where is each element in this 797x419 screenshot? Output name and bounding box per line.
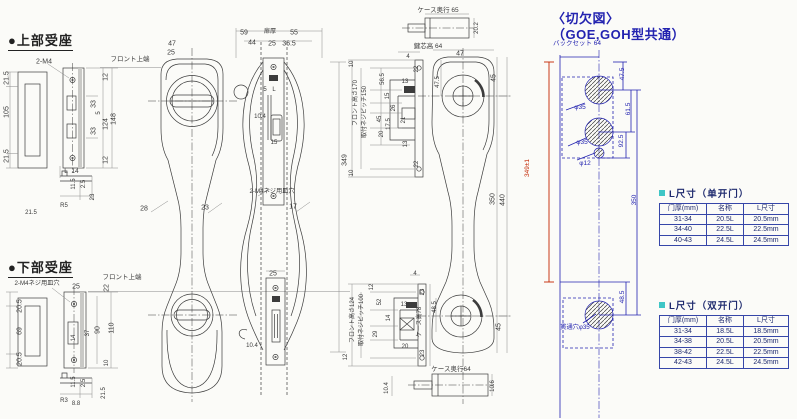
dim-label: 5 [263,87,266,93]
table-row: 31-3420.5L20.5mm [660,214,789,225]
dim-label: 21.5 [4,149,11,163]
dim-label: φ35 [576,140,587,147]
dim-label: 2.5 [81,379,87,387]
dim-label: 47.5 [435,76,441,88]
dim-label: 5 [96,111,102,114]
dim-label: 349±1 [525,159,532,177]
dim-label: 11.5 [71,178,77,189]
dim-label: 23 [201,205,209,212]
dim-label: 28 [140,206,148,213]
dim-label: 110 [109,322,116,333]
table-header-row: 门厚(mm)名称L尺寸 [660,316,789,327]
table-header-cell: 名称 [707,204,744,215]
dim-label: 10.4 [246,343,258,349]
table-cell: 22.5mm [744,347,789,358]
dim-label: 90 [95,326,102,334]
spec-table-double-door: L尺寸（双开门）门厚(mm)名称L尺寸31-3418.5L18.5mm34-38… [659,298,789,369]
table-row: 38-4222.5L22.5mm [660,347,789,358]
dim-label: 15 [271,140,278,146]
dim-label: L [272,87,275,93]
dim-label: 52 [377,299,383,306]
dim-label: 貫通穴φ35 [560,325,589,331]
dim-label: 2-M4 [36,59,52,66]
dim-label: 10.4 [254,114,266,120]
dim-label: ケース奥行 65 [417,8,458,15]
table-cell: 34-40 [660,225,707,236]
table-header-cell: 门厚(mm) [660,316,707,327]
dim-label: 33 [91,127,98,135]
dim-label: 21 [401,117,407,124]
dim-label: 8.8 [72,401,80,407]
table-cell: 20.5mm [744,214,789,225]
table-cell: 42-43 [660,358,707,369]
table-cell: 24.5mm [744,235,789,246]
dim-label: 105 [4,106,11,118]
dim-label: 25 [268,41,276,48]
dim-label: フロント高さ170 [353,80,359,126]
table-cell: 24.5L [707,358,744,369]
dim-label: 124 [103,118,110,130]
dim-label: 12 [343,354,349,361]
table-title: L尺寸（单开门） [669,186,749,200]
dim-label: 23 [420,289,426,296]
dim-label: 鍵芯高 64 [414,44,443,51]
handle-front-view-right [418,48,512,404]
dim-label: フロント上端 [103,275,142,282]
dim-label: 2-M4ネジ用皿穴 [249,189,294,195]
table-header-row: 门厚(mm)名称L尺寸 [660,204,789,215]
table-cell: 18.5L [707,326,744,337]
dim-label: 61.5 [626,103,633,116]
table-header-cell: L尺寸 [744,316,789,327]
dim-label: 47 [456,51,464,58]
dim-label: 12 [369,284,375,291]
dim-label: 21.5 [25,210,37,216]
dim-label: 56.5 [380,73,386,85]
dim-label: 10.6 [490,380,496,392]
dim-label: 29 [373,331,379,338]
dim-label: 25 [72,284,80,291]
dim-label: 10 [104,360,110,367]
lower-seat-title: ●下部受座 [8,257,73,278]
dim-label: 440 [500,194,507,206]
table-cell: 20.5L [707,337,744,348]
table-cell: 20.5L [707,214,744,225]
size-table: 门厚(mm)名称L尺寸31-3418.5L18.5mm34-3820.5L20.… [659,315,789,369]
dim-label: 13 [402,79,409,85]
table-cell: 31-34 [660,326,707,337]
dim-label: フロント上端 [111,57,150,64]
dim-label: φ12 [579,161,590,168]
table-cell: 22.5mm [744,225,789,236]
dim-label: 45 [496,323,503,331]
table-cell: 18.5mm [744,326,789,337]
dim-label: R3 [60,398,68,404]
upper-seat-title: ●上部受座 [8,30,73,51]
dim-label: 12 [103,156,110,164]
dim-label: 349 [342,154,349,166]
dim-label: 44 [248,40,256,47]
table-cell: 38-42 [660,347,707,358]
dim-label: 10 [349,61,355,68]
dim-label: 26 [391,105,397,112]
table-header-cell: 名称 [707,316,744,327]
dim-label: 扉厚 [264,29,276,35]
table-title: L尺寸（双开门） [669,298,749,312]
dim-label: 20 [402,344,409,350]
dim-label: 10 [349,170,355,177]
dim-label: 13 [401,302,408,308]
dim-label: 350 [490,193,497,205]
dim-label: 10.4 [384,382,390,394]
dim-label: フロント高さ124 [350,297,356,343]
table-cell: 24.5mm [744,358,789,369]
dim-label: 12 [103,73,110,81]
dim-label: 17 [289,204,297,211]
table-row: 40-4324.5L24.5mm [660,235,789,246]
dim-label: 33 [91,100,98,108]
table-cell: 31-34 [660,214,707,225]
dim-label: 59 [240,30,248,37]
dim-label: 48.5 [432,301,438,313]
dim-label: 23 [90,194,96,201]
dim-label: 22 [414,161,420,168]
dim-label: 4 [406,54,409,60]
dim-label: 36.5 [282,41,296,48]
dim-label: 21.5 [4,71,11,85]
table-cell: 34-38 [660,337,707,348]
dim-label: 48.5 [620,291,627,304]
dim-label: 47 [168,41,176,48]
table-header-cell: L尺寸 [744,204,789,215]
dim-label: 69 [17,327,24,335]
table-row: 31-3418.5L18.5mm [660,326,789,337]
table-cell: 24.5L [707,235,744,246]
cyan-square-icon [659,190,665,196]
dim-label: 17.5 [386,118,392,130]
technical-drawing-canvas: ●上部受座 ●下部受座 〈切欠図〉 （GOE,GOH型共通） 2-M4フロント上… [0,0,797,419]
dim-label: ケース高78 [417,307,423,337]
table-cell: 40-43 [660,235,707,246]
table-row: 34-3820.5L20.5mm [660,337,789,348]
cyan-square-icon [659,302,665,308]
dim-label: L [64,169,68,176]
table-cell: 22.5L [707,347,744,358]
dim-label: 20.5 [17,299,24,313]
handle-front-view-left [148,48,238,402]
dim-label: 13 [403,141,409,148]
dim-label: 取付ネジピッチ150 [362,86,368,138]
dim-label: φ35 [574,105,585,112]
dim-label: 14 [71,335,77,342]
dim-label: 2.5 [81,180,87,188]
dim-label: 21.5 [101,387,107,399]
table-title-row: L尺寸（单开门） [659,186,789,200]
dim-label: 23 [420,350,426,357]
dim-label: 20 [379,131,385,138]
dim-label: 45 [377,116,383,123]
dim-label: 37 [85,330,91,337]
dim-label: 14 [386,315,392,322]
table-title-row: L尺寸（双开门） [659,298,789,312]
dim-label: 15 [385,93,391,100]
dim-label: 92.5 [619,135,626,148]
dim-label: 22 [414,66,420,73]
table-row: 42-4324.5L24.5mm [660,358,789,369]
table-row: 34-4022.5L22.5mm [660,225,789,236]
handle-side-view [208,28,346,395]
dim-label: 45 [491,74,498,82]
dim-label: 14 [71,169,78,176]
table-cell: 22.5L [707,225,744,236]
dim-label: 取付ネジピッチ100 [359,294,365,346]
size-table: 门厚(mm)名称L尺寸31-3420.5L20.5mm34-4022.5L22.… [659,203,789,246]
dim-label: R5 [60,203,68,209]
table-header-cell: 门厚(mm) [660,204,707,215]
dim-label: 11.5 [71,376,77,387]
dim-label: 20.2 [474,22,480,34]
dim-label: 148 [111,113,118,125]
spec-table-single-door: L尺寸（单开门）门厚(mm)名称L尺寸31-3420.5L20.5mm34-40… [659,186,789,246]
dim-label: 55 [290,30,298,37]
dim-label: 47.5 [620,68,627,81]
dim-label: 4 [413,271,416,277]
dim-label: 25 [167,50,175,57]
table-cell: 20.5mm [744,337,789,348]
dim-label: 350 [632,195,639,206]
dim-label: 2-M4ネジ用皿穴 [14,281,59,287]
dim-label: バックセット 64 [553,41,601,48]
dim-label: 25 [269,271,277,278]
lock-case-drawing [348,14,494,396]
dim-label: 22 [104,284,111,292]
dim-label: ケース奥行64 [431,367,470,374]
dim-label: 20.5 [17,352,24,366]
